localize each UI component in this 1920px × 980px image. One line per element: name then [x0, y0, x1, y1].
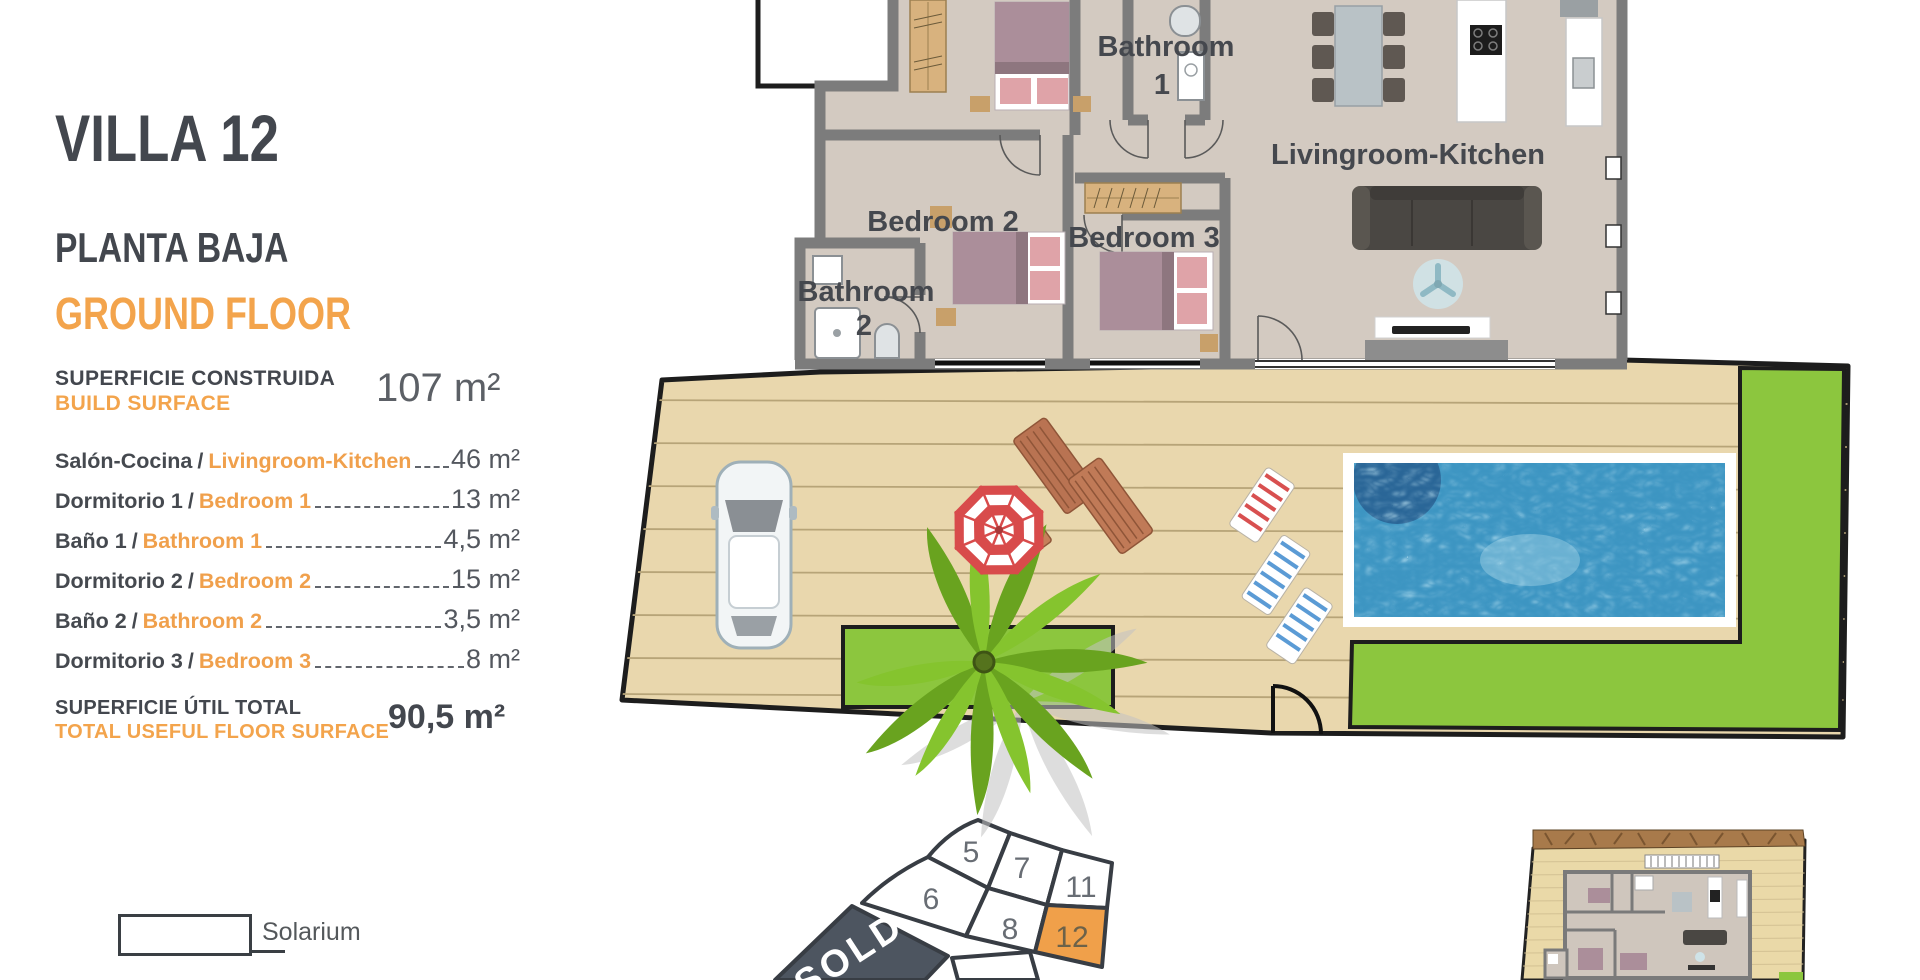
thumb-house — [1545, 872, 1750, 978]
build-surface-value: 107 m² — [376, 366, 501, 411]
room-name-es: Dormitorio 3 — [55, 649, 183, 674]
room-area-value: 4,5 m² — [443, 524, 520, 555]
ceiling-fan — [1413, 259, 1463, 309]
room-name-en: Bedroom 3 — [199, 649, 311, 674]
plot-number-7: 7 — [1014, 852, 1031, 885]
label-bathroom1: Bathroom — [1098, 31, 1235, 63]
room-name-en: Bathroom 2 — [143, 609, 262, 634]
thumb-lawn — [1779, 972, 1803, 980]
info-panel: VILLA 12 PLANTA BAJA GROUND FLOOR SUPERF… — [0, 0, 560, 980]
thumb-stairs — [1645, 855, 1719, 868]
solarium-swatch — [118, 914, 252, 956]
separator: / — [188, 569, 194, 594]
dining-set — [1312, 6, 1405, 106]
room-name-es: Salón-Cocina — [55, 449, 192, 474]
plot-number-5: 5 — [963, 836, 980, 869]
exterior-notch — [758, 0, 893, 86]
dotted-leader — [315, 586, 449, 588]
room-name-es: Dormitorio 1 — [55, 489, 183, 514]
plot-number-12: 12 — [1055, 921, 1088, 954]
table-row: Dormitorio 2/Bedroom 2 15 m² — [55, 564, 520, 589]
subtitle-english: GROUND FLOOR — [55, 288, 351, 340]
table-row: Salón-Cocina/Livingroom-Kitchen 46 m² — [55, 444, 520, 469]
page-title: VILLA 12 — [55, 100, 279, 176]
terrace-deck — [615, 360, 1850, 737]
room-name-es: Dormitorio 2 — [55, 569, 183, 594]
dotted-leader — [315, 666, 464, 668]
build-surface-labels: SUPERFICIE CONSTRUIDA BUILD SURFACE — [55, 366, 335, 416]
label-living: Livingroom-Kitchen — [1271, 139, 1545, 171]
room-name-en: Bedroom 1 — [199, 489, 311, 514]
total-surface-value: 90,5 m² — [388, 698, 505, 737]
room-area-value: 15 m² — [451, 564, 520, 595]
plot-number-11: 11 — [1065, 871, 1096, 904]
dotted-leader — [266, 626, 441, 628]
room-area-value: 46 m² — [451, 444, 520, 475]
separator: / — [132, 529, 138, 554]
room-name-es: Baño 2 — [55, 609, 127, 634]
plot-number-9: 9 — [974, 976, 991, 980]
room-name-en: Bedroom 2 — [199, 569, 311, 594]
build-surface-label-es: SUPERFICIE CONSTRUIDA — [55, 366, 335, 391]
separator: / — [132, 609, 138, 634]
plot-number-8: 8 — [1002, 913, 1019, 946]
total-label-es: SUPERFICIE ÚTIL TOTAL — [55, 696, 389, 720]
label-bathroom1-num: 1 — [1154, 69, 1170, 101]
separator: / — [188, 489, 194, 514]
room-area-table: Salón-Cocina/Livingroom-Kitchen 46 m² Do… — [55, 444, 520, 684]
car — [711, 462, 797, 648]
house-floorplan: Bathroom 1 Livingroom-Kitchen Bedroom 2 … — [758, 0, 1627, 369]
table-row: Baño 1/Bathroom 1 4,5 m² — [55, 524, 520, 549]
label-bathroom2-num: 2 — [856, 310, 872, 342]
solarium-swatch-line — [249, 950, 285, 953]
room-name-es: Baño 1 — [55, 529, 127, 554]
swimming-pool — [1343, 436, 1736, 627]
room-area-value: 3,5 m² — [443, 604, 520, 635]
room-name-en: Bathroom 1 — [143, 529, 262, 554]
plot-9-partial — [952, 952, 1038, 980]
sofa — [1352, 186, 1542, 250]
table-row: Baño 2/Bathroom 2 3,5 m² — [55, 604, 520, 629]
site-map: 5 7 11 6 8 12 9 SOLD — [775, 820, 1112, 980]
separator: / — [188, 649, 194, 674]
room-area-value: 13 m² — [451, 484, 520, 515]
total-label-en: TOTAL USEFUL FLOOR SURFACE — [55, 720, 389, 744]
tv-unit — [1375, 317, 1490, 338]
subtitle-spanish: PLANTA BAJA — [55, 224, 288, 272]
plot-number-6: 6 — [923, 883, 940, 916]
separator: / — [197, 449, 203, 474]
thumbnail-plan — [1520, 830, 1808, 980]
door-threshold — [1365, 340, 1508, 360]
label-bathroom2: Bathroom — [798, 276, 935, 308]
solarium-label: Solarium — [262, 918, 361, 947]
room-area-value: 8 m² — [466, 644, 520, 675]
build-surface-label-en: BUILD SURFACE — [55, 391, 335, 416]
dotted-leader — [415, 466, 449, 468]
table-row: Dormitorio 1/Bedroom 1 13 m² — [55, 484, 520, 509]
label-bedroom2: Bedroom 2 — [867, 206, 1018, 238]
room-name-en: Livingroom-Kitchen — [208, 449, 411, 474]
dotted-leader — [315, 506, 449, 508]
label-bedroom3: Bedroom 3 — [1068, 222, 1219, 254]
table-row: Dormitorio 3/Bedroom 3 8 m² — [55, 644, 520, 669]
total-surface-labels: SUPERFICIE ÚTIL TOTAL TOTAL USEFUL FLOOR… — [55, 696, 389, 744]
dotted-leader — [266, 546, 441, 548]
